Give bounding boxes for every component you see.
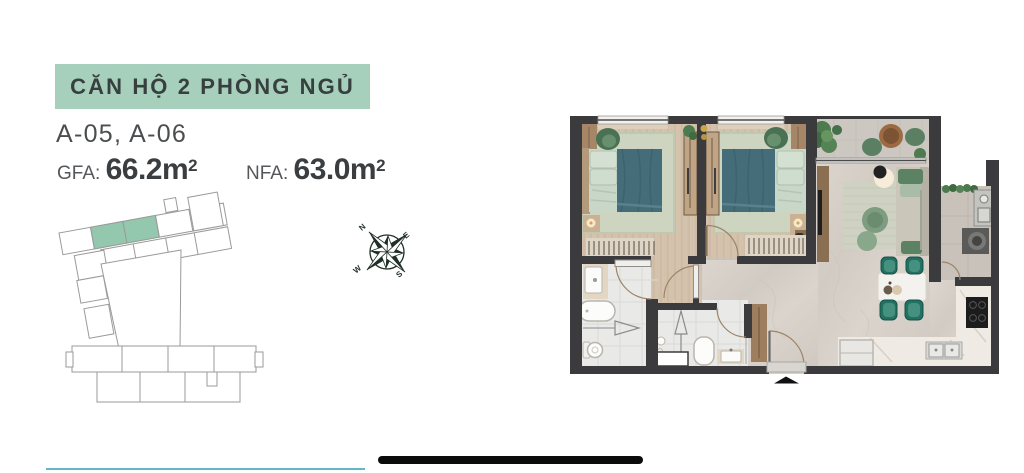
- svg-text:N: N: [357, 222, 367, 233]
- svg-text:W: W: [352, 263, 364, 275]
